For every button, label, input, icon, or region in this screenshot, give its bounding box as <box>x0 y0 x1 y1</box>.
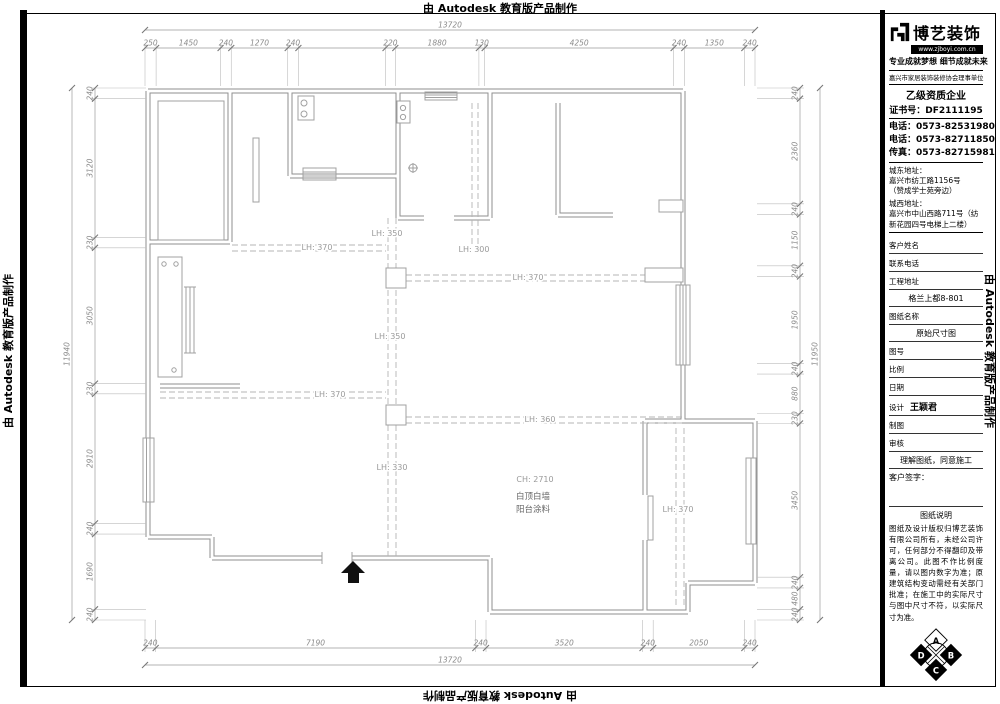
beam-height-label: LH: 350 <box>375 332 406 341</box>
dim-label: 13720 <box>438 656 462 665</box>
dim-label: 480 <box>791 591 800 606</box>
closet-inner <box>158 101 224 240</box>
beam-height-label: LH: 370 <box>513 273 544 282</box>
dim-label: 130 <box>475 39 490 48</box>
dim-label: 13720 <box>438 21 462 30</box>
dim-label: 240 <box>286 39 301 48</box>
field-value-row: 格兰上都8-801 <box>889 290 983 307</box>
title-block-fields: 客户姓名联系电话工程地址格兰上都8-801图纸名称原始尺寸图图号比例日期设计王颖… <box>889 236 983 469</box>
dim-label: 7190 <box>306 639 325 648</box>
dim-label: 250 <box>143 39 158 48</box>
fax: 传真：0573-82715981 <box>889 147 983 160</box>
dim-label: 240 <box>86 521 95 536</box>
dim-label: 240 <box>791 607 800 622</box>
drawing-notes: 图纸及设计版权归博艺装饰有限公司所有，未经公司许可，任何部分不得翻印及带离公司。… <box>889 523 983 623</box>
field-row: 联系电话 <box>889 254 983 272</box>
field-value-row: 原始尺寸图 <box>889 325 983 342</box>
signature-label: 客户签字： <box>889 473 929 482</box>
separator <box>889 70 983 71</box>
room-note: CH: 2710 <box>516 475 553 484</box>
beam-height-label: LH: 300 <box>459 245 490 254</box>
dim-label: 1270 <box>250 39 269 48</box>
field-label: 比例 <box>889 364 904 375</box>
beam-lines <box>160 103 684 608</box>
phone-1: 电话：0573-82531980 <box>889 121 983 134</box>
company-url: www.zjboyi.com.cn <box>918 46 975 53</box>
beam-height-label: LH: 360 <box>525 415 556 424</box>
dim-label: 1950 <box>791 310 800 329</box>
dim-label: 3050 <box>86 306 95 325</box>
compass-c: C <box>933 665 939 675</box>
wall-block <box>645 268 683 282</box>
address-west-label: 城西地址： <box>889 198 983 209</box>
dim-label: 240 <box>143 639 158 648</box>
compass-d: D <box>918 650 925 660</box>
dim-label: 240 <box>86 86 95 101</box>
membership-line: 嘉兴市家居装饰装修协会理事单位 <box>889 73 983 82</box>
label-layer: LH: 350LH: 300LH: 370LH: 370LH: 350LH: 3… <box>302 229 694 515</box>
field-row: 制图 <box>889 416 983 434</box>
field-label: 审核 <box>889 438 904 449</box>
dim-label: 1150 <box>791 230 800 249</box>
address-east-note: （赞成学士苑旁边） <box>889 186 983 196</box>
beam-height-label: LH: 370 <box>663 505 694 514</box>
door-opening-ticks <box>322 552 352 564</box>
field-row: 审核 <box>889 434 983 452</box>
dim-label: 3520 <box>555 639 574 648</box>
company-slogan: 专业成就梦想 细节成就未来 <box>889 56 983 67</box>
beam-height-label: LH: 370 <box>315 390 346 399</box>
wall-notch <box>659 200 683 212</box>
entry-arrow-icon <box>341 561 365 583</box>
dim-label: 240 <box>86 607 95 622</box>
field-row: 图号 <box>889 342 983 360</box>
dim-label: 4250 <box>570 39 589 48</box>
field-label: 制图 <box>889 420 904 431</box>
dim-label: 230 <box>791 411 800 426</box>
dim-label: 1450 <box>179 39 198 48</box>
field-value: 王颖君 <box>910 400 937 413</box>
beam-height-label: LH: 350 <box>372 229 403 238</box>
window <box>143 438 154 502</box>
dim-label: 240 <box>641 639 656 648</box>
fixtures <box>143 92 756 564</box>
dim-label: 240 <box>219 39 234 48</box>
dim-label: 880 <box>791 386 800 401</box>
walls <box>148 91 755 612</box>
column <box>386 268 406 288</box>
dimension-layer: 2501450240127024022018801304250240135024… <box>63 21 824 669</box>
dim-label: 240 <box>672 39 687 48</box>
room-note: 阳台涂料 <box>516 504 551 515</box>
certificate-number: 证书号：DF2111195 <box>889 103 983 116</box>
room-note: 白顶白墙 <box>516 491 551 502</box>
dim-label: 230 <box>86 381 95 396</box>
dim-label: 2050 <box>689 639 708 648</box>
company-name: 博艺装饰 <box>913 20 981 44</box>
dim-label: 220 <box>383 39 398 48</box>
dim-label: 11950 <box>811 342 820 366</box>
dim-label: 2910 <box>86 449 95 468</box>
address-east: 嘉兴市纺工路1156号 <box>889 176 983 186</box>
compass-a: A <box>933 635 940 645</box>
beam-height-label: LH: 330 <box>377 463 408 472</box>
dim-label: 1350 <box>705 39 724 48</box>
dim-label: 3450 <box>791 491 800 510</box>
dim-label: 1690 <box>86 562 95 581</box>
notes-title: 图纸说明 <box>889 510 983 521</box>
dim-label: 11940 <box>63 342 72 366</box>
floor-plan: 2501450240127024022018801304250240135024… <box>0 0 1000 701</box>
beam-height-label: LH: 370 <box>302 243 333 252</box>
column <box>386 405 406 425</box>
dim-label: 240 <box>743 639 758 648</box>
dim-label: 3120 <box>86 158 95 177</box>
separator <box>889 232 983 233</box>
dim-label: 2360 <box>791 142 800 161</box>
field-label: 设计 <box>889 402 904 413</box>
dim-label: 240 <box>743 39 758 48</box>
field-label: 客户姓名 <box>889 240 919 251</box>
dim-label: 240 <box>791 86 800 101</box>
field-label: 图号 <box>889 346 904 357</box>
field-label: 日期 <box>889 382 904 393</box>
door-leaf <box>253 138 259 202</box>
qualification-grade: 乙级资质企业 <box>889 87 983 102</box>
field-label: 图纸名称 <box>889 311 919 322</box>
field-label: 联系电话 <box>889 258 919 269</box>
signature-area: 客户签字： <box>889 469 983 507</box>
dim-label: 240 <box>474 639 489 648</box>
company-url-bar: www.zjboyi.com.cn <box>911 45 983 54</box>
field-label: 工程地址 <box>889 276 919 287</box>
field-row: 客户姓名 <box>889 236 983 254</box>
separator <box>889 162 983 163</box>
address-east-label: 城东地址： <box>889 165 983 176</box>
boyi-logo-icon <box>889 21 911 43</box>
compass-logo-icon: A B C D <box>908 627 964 683</box>
separator <box>889 84 983 85</box>
separator <box>889 118 983 119</box>
phone-2: 电话：0573-82711850 <box>889 134 983 147</box>
compass-b: B <box>948 650 954 660</box>
dim-label: 230 <box>86 235 95 250</box>
door-leaf <box>648 496 653 540</box>
dim-label: 240 <box>791 361 800 376</box>
dim-label: 240 <box>791 264 800 279</box>
field-row: 图纸名称 <box>889 307 983 325</box>
field-value-row: 理解图纸，同意施工 <box>889 452 983 469</box>
dim-label: 1880 <box>428 39 447 48</box>
field-row: 设计王颖君 <box>889 396 983 416</box>
field-row: 日期 <box>889 378 983 396</box>
title-block: 博艺装饰 www.zjboyi.com.cn 专业成就梦想 细节成就未来 嘉兴市… <box>889 20 983 683</box>
address-west: 嘉兴市中山西路711号（纺新花园四号电梯上二楼） <box>889 209 983 229</box>
dim-label: 240 <box>791 575 800 590</box>
field-row: 工程地址 <box>889 272 983 290</box>
sliding-door <box>184 287 196 353</box>
dim-label: 240 <box>791 202 800 217</box>
field-row: 比例 <box>889 360 983 378</box>
drawing-sheet: 由 Autodesk 教育版产品制作 由 Autodesk 教育版产品制作 由 … <box>0 0 1000 701</box>
wardrobe <box>158 257 182 377</box>
